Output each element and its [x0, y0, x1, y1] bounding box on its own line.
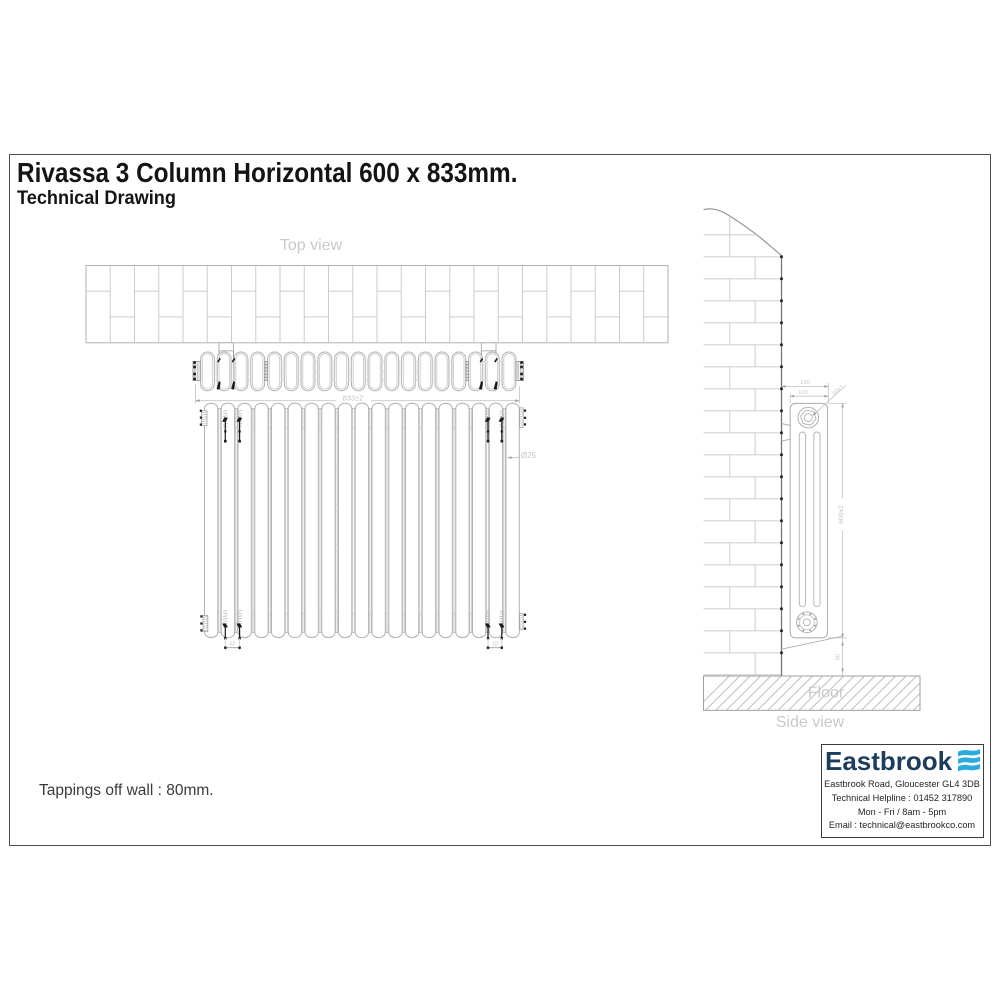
svg-text:Side view: Side view — [776, 714, 845, 731]
svg-text:100: 100 — [798, 390, 808, 396]
svg-text:50: 50 — [836, 654, 842, 660]
svg-text:10: 10 — [492, 642, 498, 648]
svg-text:Floor: Floor — [808, 685, 845, 702]
svg-text:Ø25: Ø25 — [521, 451, 537, 460]
svg-text:130: 130 — [800, 380, 810, 386]
svg-text:62: 62 — [230, 642, 236, 648]
svg-text:Top view: Top view — [280, 237, 343, 254]
svg-text:60±2: 60±2 — [832, 384, 846, 397]
svg-text:600±2: 600±2 — [838, 505, 845, 524]
svg-text:833±2: 833±2 — [343, 394, 364, 403]
